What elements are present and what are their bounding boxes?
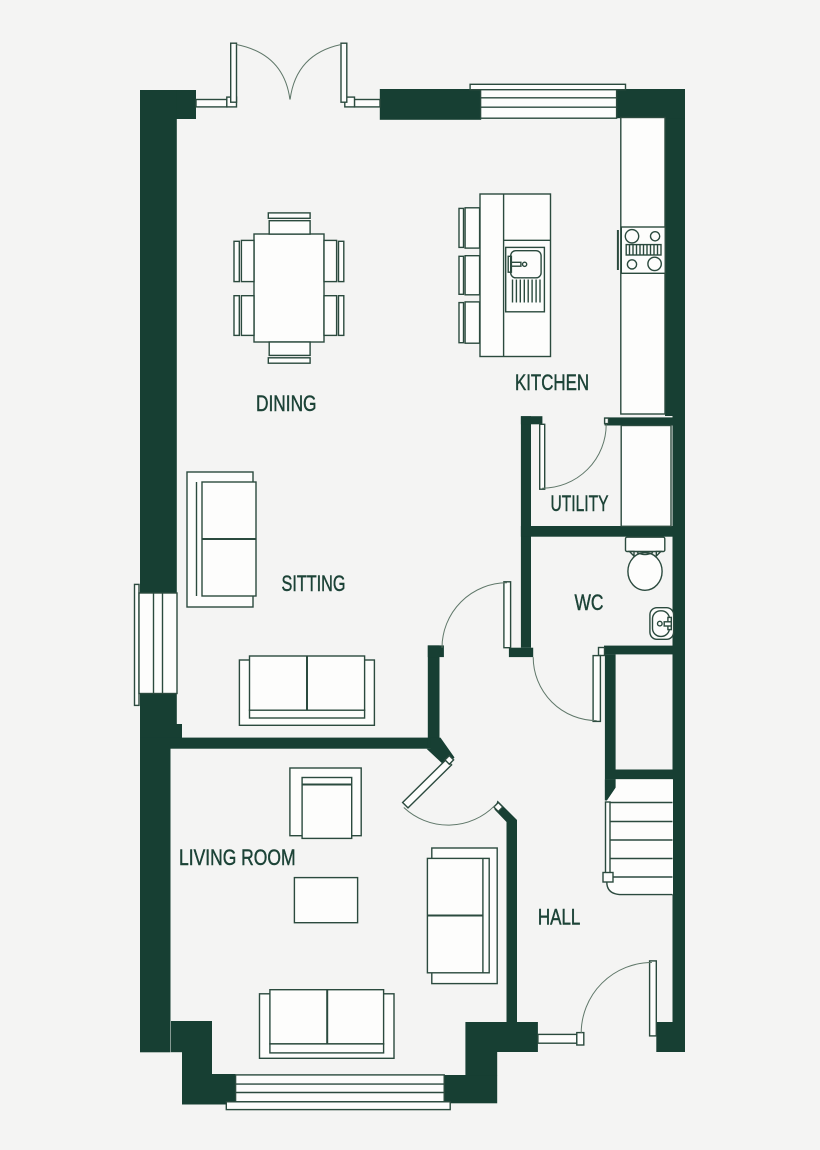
svg-text:SITTING: SITTING	[282, 571, 346, 596]
svg-text:KITCHEN: KITCHEN	[515, 370, 589, 395]
svg-text:UTILITY: UTILITY	[551, 491, 609, 516]
svg-text:WC: WC	[575, 590, 604, 615]
svg-text:DINING: DINING	[256, 391, 317, 416]
svg-text:HALL: HALL	[538, 905, 581, 930]
svg-text:LIVING ROOM: LIVING ROOM	[179, 845, 296, 870]
